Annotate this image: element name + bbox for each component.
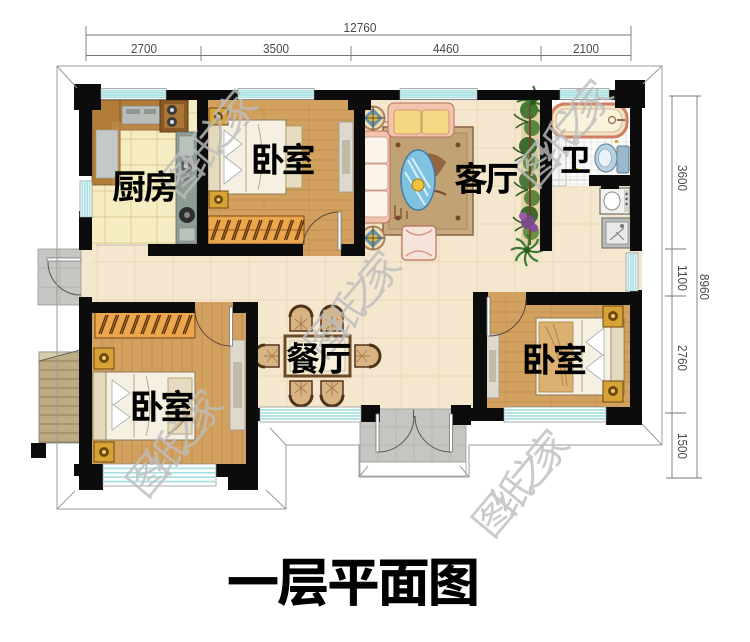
svg-text:3500: 3500 (263, 41, 289, 56)
svg-text:1500: 1500 (675, 433, 690, 459)
svg-text:2760: 2760 (675, 345, 690, 371)
svg-text:3600: 3600 (675, 165, 690, 191)
svg-text:2700: 2700 (131, 41, 157, 56)
svg-text:8960: 8960 (697, 274, 712, 300)
svg-text:12760: 12760 (344, 20, 377, 35)
svg-text:1100: 1100 (675, 265, 690, 291)
svg-text:4460: 4460 (433, 41, 459, 56)
svg-text:2100: 2100 (573, 41, 599, 56)
